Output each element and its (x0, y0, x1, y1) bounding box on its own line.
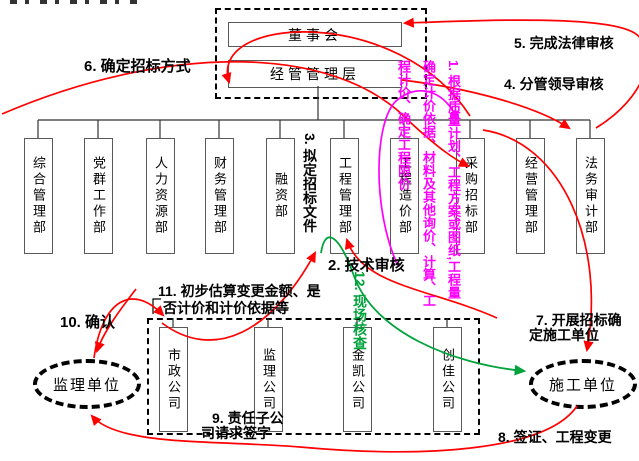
step6-label: 6. 确定招标方式 (84, 55, 191, 76)
step4-label: 4. 分管领导审核 (504, 74, 604, 94)
org-bidding-flow-diagram: 董事会 经管管理层 综合管理部 党群工作部 人力资源部 财务管理部 融资部 工程… (0, 0, 639, 461)
step12-label-vertical: 12. 现场核查 (350, 271, 370, 349)
step9-label-line2: 司请求签字 (201, 423, 271, 443)
step8-label: 8. 签证、工程变更 (498, 427, 612, 447)
label-layer: 6. 确定招标方式 5. 完成法律审核 4. 分管领导审核 2. 技术审核 11… (0, 0, 639, 461)
step10-label: 10. 确认 (60, 311, 115, 332)
step5-label: 5. 完成法律审核 (514, 33, 614, 53)
step3-label-vertical: 3. 拟定招标文件 (300, 133, 320, 285)
step11-label-line2: 否计价和计价依据等 (163, 298, 289, 318)
step7-label-line2: 定施工单位 (529, 325, 599, 345)
step1-pricing-note-vertical: 1. 根据质量计划、工程方案或图纸,工程量确定计价依据、材料及其他询价、计算、工… (388, 60, 466, 312)
